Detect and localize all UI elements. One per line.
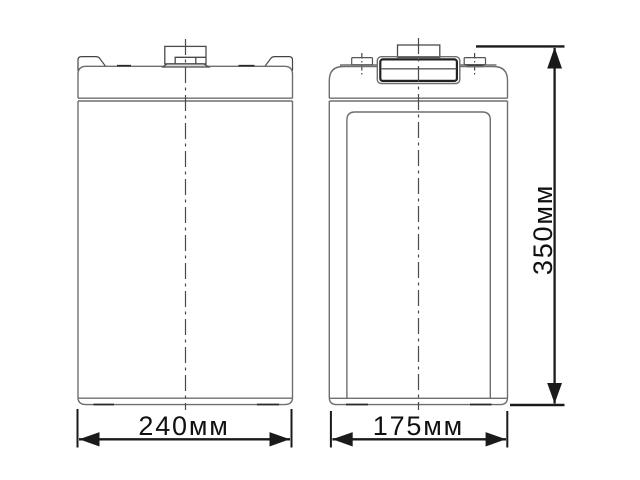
svg-text:350мм: 350мм	[528, 184, 558, 275]
svg-text:175мм: 175мм	[373, 411, 464, 441]
svg-text:240мм: 240мм	[138, 411, 229, 441]
